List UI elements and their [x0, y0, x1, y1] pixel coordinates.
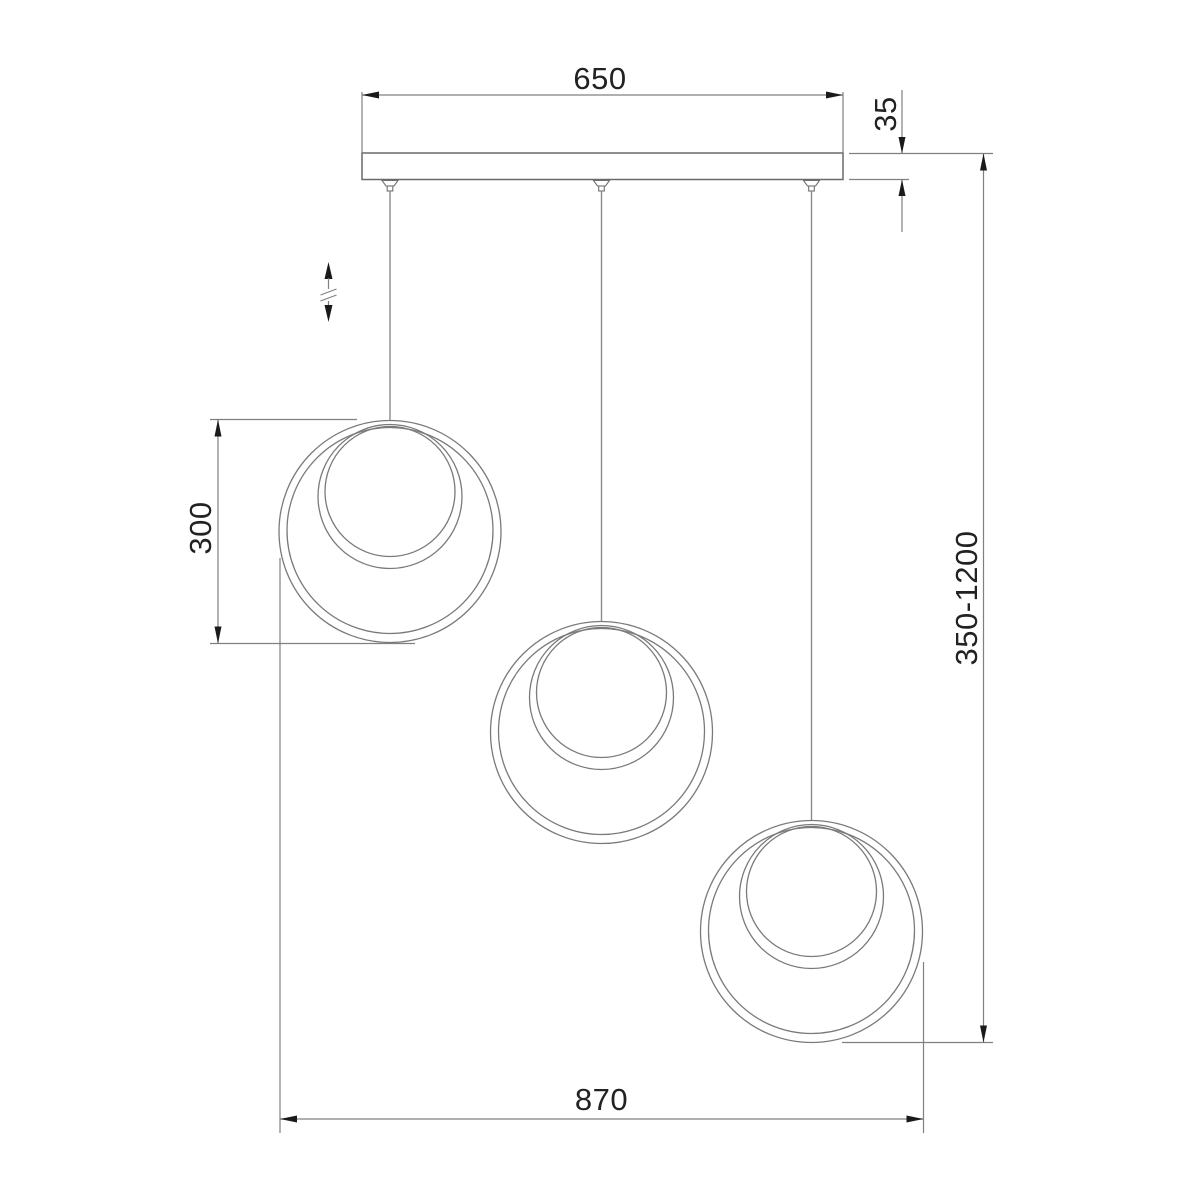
adjust-break-line-1 — [321, 289, 337, 295]
cord-fitting-3 — [804, 181, 820, 192]
dimrange-arrow-down — [980, 1026, 987, 1043]
pendant3-inner-ring-outline — [740, 825, 884, 969]
dimrange-arrow-up — [980, 154, 987, 171]
pendant1-inner-ring-outline — [318, 425, 462, 569]
dim870-arrow-left — [280, 1116, 297, 1123]
pendant3-inner-ring-inner-edge — [747, 827, 877, 957]
dim35-arrow-down — [899, 137, 906, 154]
dim870-arrow-right — [907, 1116, 924, 1123]
dim-canopy-width: 650 — [362, 61, 843, 153]
pendant2-outer-ring-outline — [491, 622, 713, 844]
fitting-cone-3 — [804, 181, 820, 187]
dim300-label: 300 — [183, 501, 218, 554]
cord-fitting-1 — [382, 181, 398, 192]
pendant1-inner-ring-inner-edge — [325, 427, 455, 557]
cord-fitting-2 — [594, 181, 610, 192]
dim650-label: 650 — [573, 61, 626, 96]
dimrange-label: 350-1200 — [949, 530, 984, 665]
dim870-label: 870 — [575, 1082, 628, 1117]
fitting-stem-1 — [387, 186, 393, 191]
dim650-arrow-left — [362, 92, 379, 99]
dim35-arrow-up — [899, 180, 906, 197]
dim-ring-diameter: 300 — [183, 420, 415, 644]
adjust-break-line-2 — [321, 295, 337, 301]
dim650-arrow-right — [826, 92, 843, 99]
adjust-arrow-up — [325, 262, 333, 279]
technical-drawing-canvas: 650 35 350-1200 300 — [0, 0, 1200, 1200]
dim-height-range: 350-1200 — [842, 154, 993, 1043]
fitting-cone-1 — [382, 181, 398, 187]
fitting-cone-2 — [594, 181, 610, 187]
pendant3-outer-ring-outline — [701, 821, 923, 1043]
adjust-arrow-down — [325, 305, 333, 322]
pendant-ring-2 — [491, 622, 713, 844]
pendant3-outer-ring-inner-edge — [709, 828, 915, 1034]
dim300-arrow-down — [215, 627, 222, 644]
dim-overall-width: 870 — [280, 558, 924, 1133]
pendant2-inner-ring-inner-edge — [537, 628, 667, 758]
ceiling-canopy — [362, 153, 843, 180]
pendant1-outer-ring-outline — [279, 421, 501, 643]
pendant-lamp-dimension-drawing: 650 35 350-1200 300 — [0, 0, 1200, 1200]
fitting-stem-3 — [809, 186, 815, 191]
height-adjust-icon — [321, 262, 337, 322]
pendant1-outer-ring-inner-edge — [287, 428, 493, 634]
pendant-ring-3 — [701, 821, 923, 1043]
pendant2-outer-ring-inner-edge — [499, 629, 705, 835]
dim-canopy-thickness: 35 — [849, 90, 909, 232]
dim300-arrow-up — [215, 420, 222, 437]
pendant2-inner-ring-outline — [530, 626, 674, 770]
pendant-ring-1 — [279, 421, 501, 643]
fitting-stem-2 — [599, 186, 605, 191]
dim35-label: 35 — [868, 96, 903, 131]
